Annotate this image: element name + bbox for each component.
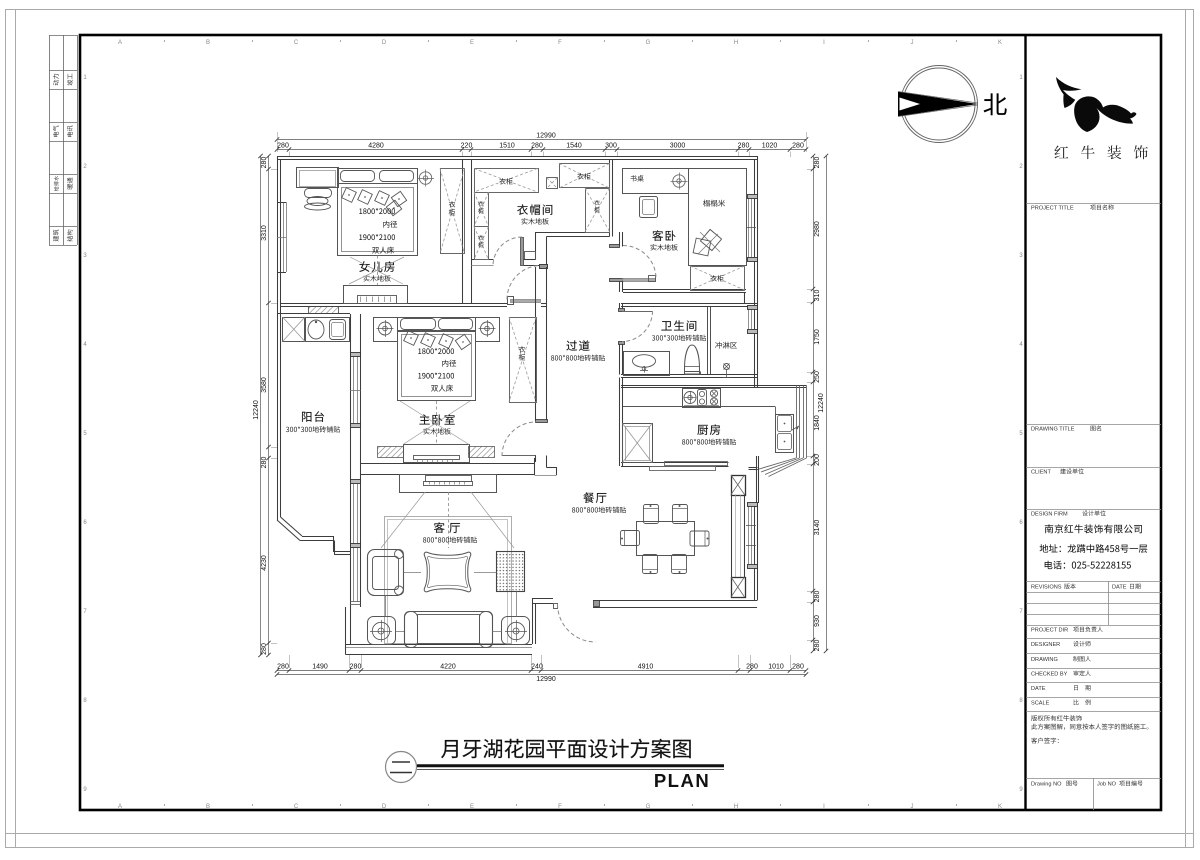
svg-text:280: 280 [792, 143, 804, 150]
svg-text:PLAN: PLAN [654, 770, 710, 791]
svg-text:PROJECT DIR: PROJECT DIR [1031, 628, 1068, 634]
svg-text:12240: 12240 [818, 393, 825, 413]
svg-text:1840: 1840 [814, 415, 821, 431]
svg-text:1510: 1510 [499, 143, 515, 150]
svg-text:CHECKED BY: CHECKED BY [1031, 672, 1068, 678]
svg-text:930: 930 [814, 615, 821, 627]
svg-text:1020: 1020 [762, 143, 778, 150]
svg-text:D: D [382, 804, 387, 810]
svg-text:310: 310 [814, 290, 821, 302]
svg-text:3580: 3580 [261, 377, 268, 393]
svg-text:DESIGNER: DESIGNER [1031, 642, 1060, 648]
svg-text:280: 280 [531, 143, 543, 150]
svg-text:C: C [294, 40, 299, 46]
svg-text:J: J [911, 40, 914, 46]
svg-text:G: G [646, 804, 651, 810]
svg-text:G: G [646, 40, 651, 46]
svg-text:250: 250 [814, 371, 821, 383]
svg-text:2980: 2980 [814, 221, 821, 237]
svg-text:280: 280 [814, 640, 821, 652]
svg-text:Drawing NO: Drawing NO [1031, 782, 1062, 788]
svg-text:220: 220 [461, 143, 473, 150]
svg-text:C: C [294, 804, 299, 810]
svg-text:Job NO: Job NO [1097, 782, 1117, 788]
svg-text:4910: 4910 [638, 664, 654, 671]
svg-text:DRAWING TITLE: DRAWING TITLE [1031, 427, 1075, 433]
svg-text:D: D [382, 40, 387, 46]
svg-text:1490: 1490 [312, 664, 328, 671]
svg-text:280: 280 [792, 664, 804, 671]
svg-text:DRAWING: DRAWING [1031, 657, 1058, 663]
svg-text:K: K [998, 804, 1002, 810]
svg-text:280: 280 [350, 664, 362, 671]
svg-text:B: B [206, 804, 210, 810]
svg-text:PROJECT TITLE: PROJECT TITLE [1031, 206, 1074, 212]
svg-text:12990: 12990 [536, 676, 556, 683]
svg-text:280: 280 [261, 457, 268, 469]
svg-text:4220: 4220 [440, 664, 456, 671]
svg-text:12990: 12990 [536, 133, 556, 140]
svg-text:H: H [734, 40, 738, 46]
svg-text:12240: 12240 [253, 400, 260, 420]
svg-text:K: K [998, 40, 1002, 46]
svg-text:4280: 4280 [368, 143, 384, 150]
svg-text:1540: 1540 [566, 143, 582, 150]
svg-text:DATE: DATE [1031, 686, 1046, 692]
svg-text:300: 300 [605, 143, 617, 150]
svg-text:H: H [734, 804, 738, 810]
svg-text:SCALE: SCALE [1031, 701, 1050, 707]
svg-text:REVISIONS: REVISIONS [1031, 585, 1062, 591]
svg-text:DATE: DATE [1112, 585, 1127, 591]
svg-text:F: F [558, 40, 562, 46]
svg-text:CLIENT: CLIENT [1031, 470, 1051, 476]
svg-text:3000: 3000 [670, 143, 686, 150]
svg-text:A: A [118, 804, 122, 810]
svg-text:F: F [558, 804, 562, 810]
svg-text:E: E [470, 804, 474, 810]
svg-text:3310: 3310 [261, 225, 268, 241]
svg-text:280: 280 [814, 157, 821, 169]
svg-text:DESIGN FIRM: DESIGN FIRM [1031, 512, 1068, 518]
svg-text:280: 280 [277, 143, 289, 150]
svg-text:J: J [911, 804, 914, 810]
svg-text:1010: 1010 [768, 664, 784, 671]
svg-text:280: 280 [746, 664, 758, 671]
svg-text:4230: 4230 [261, 555, 268, 571]
svg-text:280: 280 [277, 664, 289, 671]
svg-text:240: 240 [531, 664, 543, 671]
svg-text:280: 280 [738, 143, 750, 150]
svg-text:3140: 3140 [814, 520, 821, 536]
svg-text:200: 200 [814, 454, 821, 466]
svg-text:B: B [206, 40, 210, 46]
svg-text:1750: 1750 [814, 329, 821, 345]
svg-text:280: 280 [814, 591, 821, 603]
svg-text:A: A [118, 40, 122, 46]
svg-text:E: E [470, 40, 474, 46]
svg-text:280: 280 [261, 157, 268, 169]
